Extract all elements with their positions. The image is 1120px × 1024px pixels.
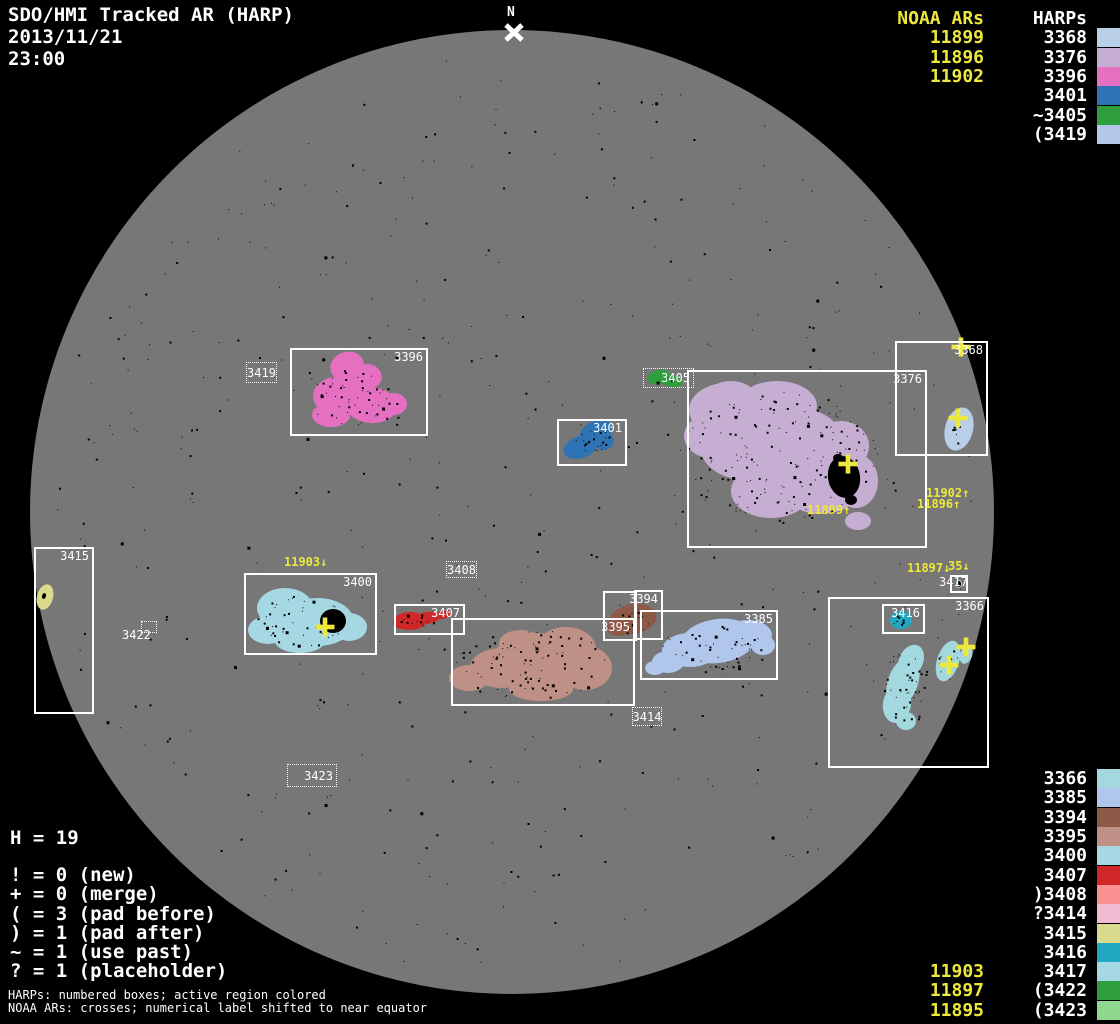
harp-number: 3416 — [984, 942, 1087, 963]
harp-color-swatch-3414 — [1097, 904, 1120, 923]
plot-time: 23:00 — [8, 48, 294, 70]
harp-box-label-3416: 3416 — [891, 607, 920, 620]
harp-box-3401: 3401 — [557, 419, 627, 466]
harp-number: 3366 — [984, 768, 1087, 789]
harp-color-swatch-3376 — [1097, 48, 1120, 67]
harp-box-label-3414: 3414 — [633, 708, 661, 725]
noaa-ar-number: 11897 — [889, 980, 984, 1001]
harp-number: 3400 — [984, 845, 1087, 866]
harp-count-text: H = 19 — [10, 829, 79, 848]
harp-box-3416: 3416 — [882, 604, 925, 634]
harp-number: 3401 — [984, 85, 1087, 106]
harp-box-label-3385: 3385 — [744, 613, 773, 626]
legend-row: 119033417 — [889, 962, 1120, 981]
harp-color-swatch-3366 — [1097, 769, 1120, 788]
harp-color-swatch-3417 — [1097, 962, 1120, 981]
harp-box-3376: 3376 — [687, 370, 927, 548]
noaa-ar-label-11899: 11899↑ — [807, 504, 850, 517]
plot-date: 2013/11/21 — [8, 26, 294, 48]
harp-label-3422: 3422 — [122, 629, 151, 642]
noaa-ar-label-11896: 11896↑ — [917, 498, 960, 511]
harp-color-swatch-3396 — [1097, 67, 1120, 86]
legend-row: ?3414 — [889, 904, 1120, 923]
legend-row: 3416 — [889, 943, 1120, 962]
harp-box-3414: 3414 — [632, 707, 662, 726]
legend-row: 3415 — [889, 923, 1120, 942]
harp-color-swatch-3423 — [1097, 1001, 1120, 1020]
legend-row: 3395 — [889, 827, 1120, 846]
harp-number: )3408 — [984, 884, 1087, 905]
harp-number: 3394 — [984, 807, 1087, 828]
footer-harps-note: HARPs: numbered boxes; active region col… — [8, 989, 427, 1002]
noaa-ar-label-35: 35↓ — [948, 560, 970, 573]
harp-box-label-3401: 3401 — [593, 422, 622, 435]
harp-box-3415: 3415 — [34, 547, 94, 714]
legend-top-right: NOAA ARsHARPs118993368118963376119023396… — [889, 9, 1120, 144]
harp-color-swatch-3416 — [1097, 943, 1120, 962]
harp-color-swatch-3422 — [1097, 981, 1120, 1000]
harp-color-swatch-3408 — [1097, 885, 1120, 904]
flag-legend: ! = 0 (new)+ = 0 (merge)( = 3 (pad befor… — [10, 866, 227, 982]
harp-box-label-3395: 3395 — [601, 621, 630, 634]
legend-row: 118993368 — [889, 28, 1120, 47]
north-label: N — [507, 5, 515, 20]
harp-box-label-3396: 3396 — [394, 351, 423, 364]
harp-number: (3419 — [984, 124, 1087, 145]
harp-color-swatch-3405 — [1097, 106, 1120, 125]
harp-box-3368: 3368 — [895, 341, 988, 456]
harp-number: 3385 — [984, 787, 1087, 808]
legend-row: (3419 — [889, 125, 1120, 144]
legend-row: 11897(3422 — [889, 981, 1120, 1000]
plot-title: SDO/HMI Tracked AR (HARP) — [8, 4, 294, 26]
legend-row: 3385 — [889, 788, 1120, 807]
harp-number: 3417 — [984, 961, 1087, 982]
legend-row: 3366 — [889, 769, 1120, 788]
noaa-ar-number: 11895 — [889, 1000, 984, 1021]
legend-row: 3407 — [889, 865, 1120, 884]
harp-box-3405: 3405 — [643, 368, 694, 388]
legend-header-row: NOAA ARsHARPs — [889, 9, 1120, 28]
noaa-ar-number: 11899 — [889, 27, 984, 48]
legend-row: ~3405 — [889, 105, 1120, 124]
harp-number: (3423 — [984, 1000, 1087, 1021]
harp-box-label-3408: 3408 — [447, 562, 476, 577]
harp-box-3423: 3423 — [287, 764, 337, 787]
legend-row: 119023396 — [889, 67, 1120, 86]
harp-box-3385: 3385 — [640, 610, 778, 680]
plot-title-block: SDO/HMI Tracked AR (HARP) 2013/11/21 23:… — [8, 4, 294, 70]
harp-box-label-3423: 3423 — [288, 765, 336, 786]
harp-box-label-3405: 3405 — [644, 369, 693, 387]
harp-box-label-3368: 3368 — [954, 344, 983, 357]
flag-legend-line: + = 0 (merge) — [10, 885, 227, 904]
harp-color-swatch-3385 — [1097, 788, 1120, 807]
harp-color-swatch-3395 — [1097, 827, 1120, 846]
harp-number: 3407 — [984, 865, 1087, 886]
harp-box-3396: 3396 — [290, 348, 428, 436]
harp-color-swatch-3407 — [1097, 866, 1120, 885]
legend-row: 3401 — [889, 86, 1120, 105]
flag-legend-line: ( = 3 (pad before) — [10, 905, 227, 924]
harp-number: 3415 — [984, 923, 1087, 944]
harp-box-3408: 3408 — [446, 561, 477, 578]
footer-noaa-note: NOAA ARs: crosses; numerical label shift… — [8, 1002, 427, 1015]
harp-number: (3422 — [984, 980, 1087, 1001]
harp-box-3419: 3419 — [246, 362, 277, 383]
harp-color-swatch-3419 — [1097, 125, 1120, 144]
noaa-ar-label-11897: 11897↓ — [907, 562, 950, 575]
harp-number: ~3405 — [984, 105, 1087, 126]
noaa-ar-number: 11902 — [889, 66, 984, 87]
flag-legend-line: ? = 1 (placeholder) — [10, 962, 227, 981]
legend-row: 3400 — [889, 846, 1120, 865]
noaa-ars-header: NOAA ARs — [889, 8, 984, 29]
harp-number: 3396 — [984, 66, 1087, 87]
harp-number: ?3414 — [984, 903, 1087, 924]
harp-number: 3368 — [984, 27, 1087, 48]
harp-color-swatch-3415 — [1097, 924, 1120, 943]
harp-color-swatch-3400 — [1097, 846, 1120, 865]
harp-number: 3395 — [984, 826, 1087, 847]
harp-color-swatch-3394 — [1097, 808, 1120, 827]
harp-color-swatch-3368 — [1097, 28, 1120, 47]
harp-number: 3376 — [984, 47, 1087, 68]
legend-row: )3408 — [889, 885, 1120, 904]
harps-header: HARPs — [984, 8, 1087, 29]
legend-header-spacer — [1097, 9, 1120, 28]
harp-box-label-3366: 3366 — [955, 600, 984, 613]
harp-box-3395: 3395 — [451, 618, 635, 706]
harp-label-3417: 3417 — [939, 576, 968, 589]
noaa-ar-number: 11896 — [889, 47, 984, 68]
noaa-ar-label-11903: 11903↓ — [284, 556, 327, 569]
legend-row: 118963376 — [889, 48, 1120, 67]
harp-box-label-3419: 3419 — [247, 363, 276, 382]
noaa-ar-number: 11903 — [889, 961, 984, 982]
legend-row: 3394 — [889, 808, 1120, 827]
footer-notes: HARPs: numbered boxes; active region col… — [8, 989, 427, 1014]
harp-color-swatch-3401 — [1097, 86, 1120, 105]
legend-bottom-right: 336633853394339534003407)3408?3414341534… — [889, 769, 1120, 1020]
solar-harp-plot: 3396337634013368341534003407339433953385… — [0, 0, 1120, 1024]
harp-box-label-3400: 3400 — [343, 576, 372, 589]
legend-row: 11895(3423 — [889, 1001, 1120, 1020]
harp-box-3400: 3400 — [244, 573, 377, 655]
harp-box-label-3415: 3415 — [60, 550, 89, 563]
